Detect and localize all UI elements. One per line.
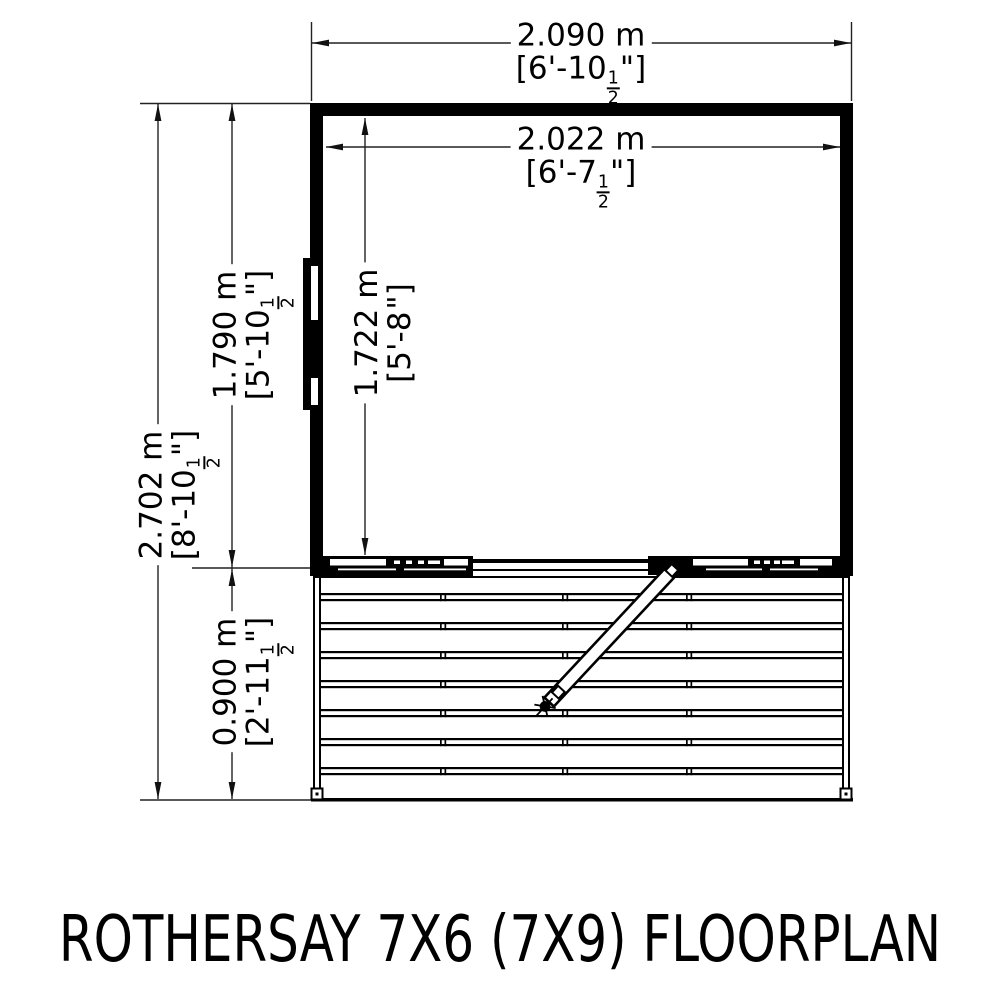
dim-veranda-depth-metric: 0.900 m [209,612,242,753]
dim-outer-width: 2.090 m [6'-1012"] [510,19,652,102]
dim-veranda-depth-imperial: [2'-1112"] [242,611,292,753]
floorplan-page: 2.090 m [6'-1012"] 2.022 m [6'-712"] 2.7… [0,0,1000,1000]
dim-shed-depth: 1.790 m [5'-1012"] [209,264,292,406]
dim-total-depth-metric: 2.702 m [135,425,168,566]
dim-veranda-depth: 0.900 m [2'-1112"] [209,611,292,753]
dim-shed-depth-metric: 1.790 m [209,265,242,406]
page-title: ROTHERSAY 7X6 (7X9) FLOORPLAN [59,903,941,977]
veranda-posts [312,789,852,800]
dim-outer-width-imperial: [6'-1012"] [510,52,652,102]
top-wall [310,103,853,116]
right-wall [840,103,853,576]
dim-total-depth-imperial: [8'-1012"] [168,424,218,566]
dim-total-depth: 2.702 m [8'-1012"] [135,424,218,566]
dim-inner-width-imperial: [6'-712"] [520,156,643,206]
dim-inner-width: 2.022 m [6'-712"] [511,123,652,206]
dim-outer-width-metric: 2.090 m [511,19,652,52]
dim-inner-depth-imperial: [5'-8"] [384,277,417,389]
veranda-decking [321,593,842,776]
dim-inner-depth-metric: 1.722 m [351,263,384,404]
door-threshold [473,559,650,571]
dim-shed-depth-imperial: [5'-1012"] [242,264,292,406]
dim-inner-depth: 1.722 m [5'-8"] [351,263,417,404]
dim-inner-width-metric: 2.022 m [511,123,652,156]
